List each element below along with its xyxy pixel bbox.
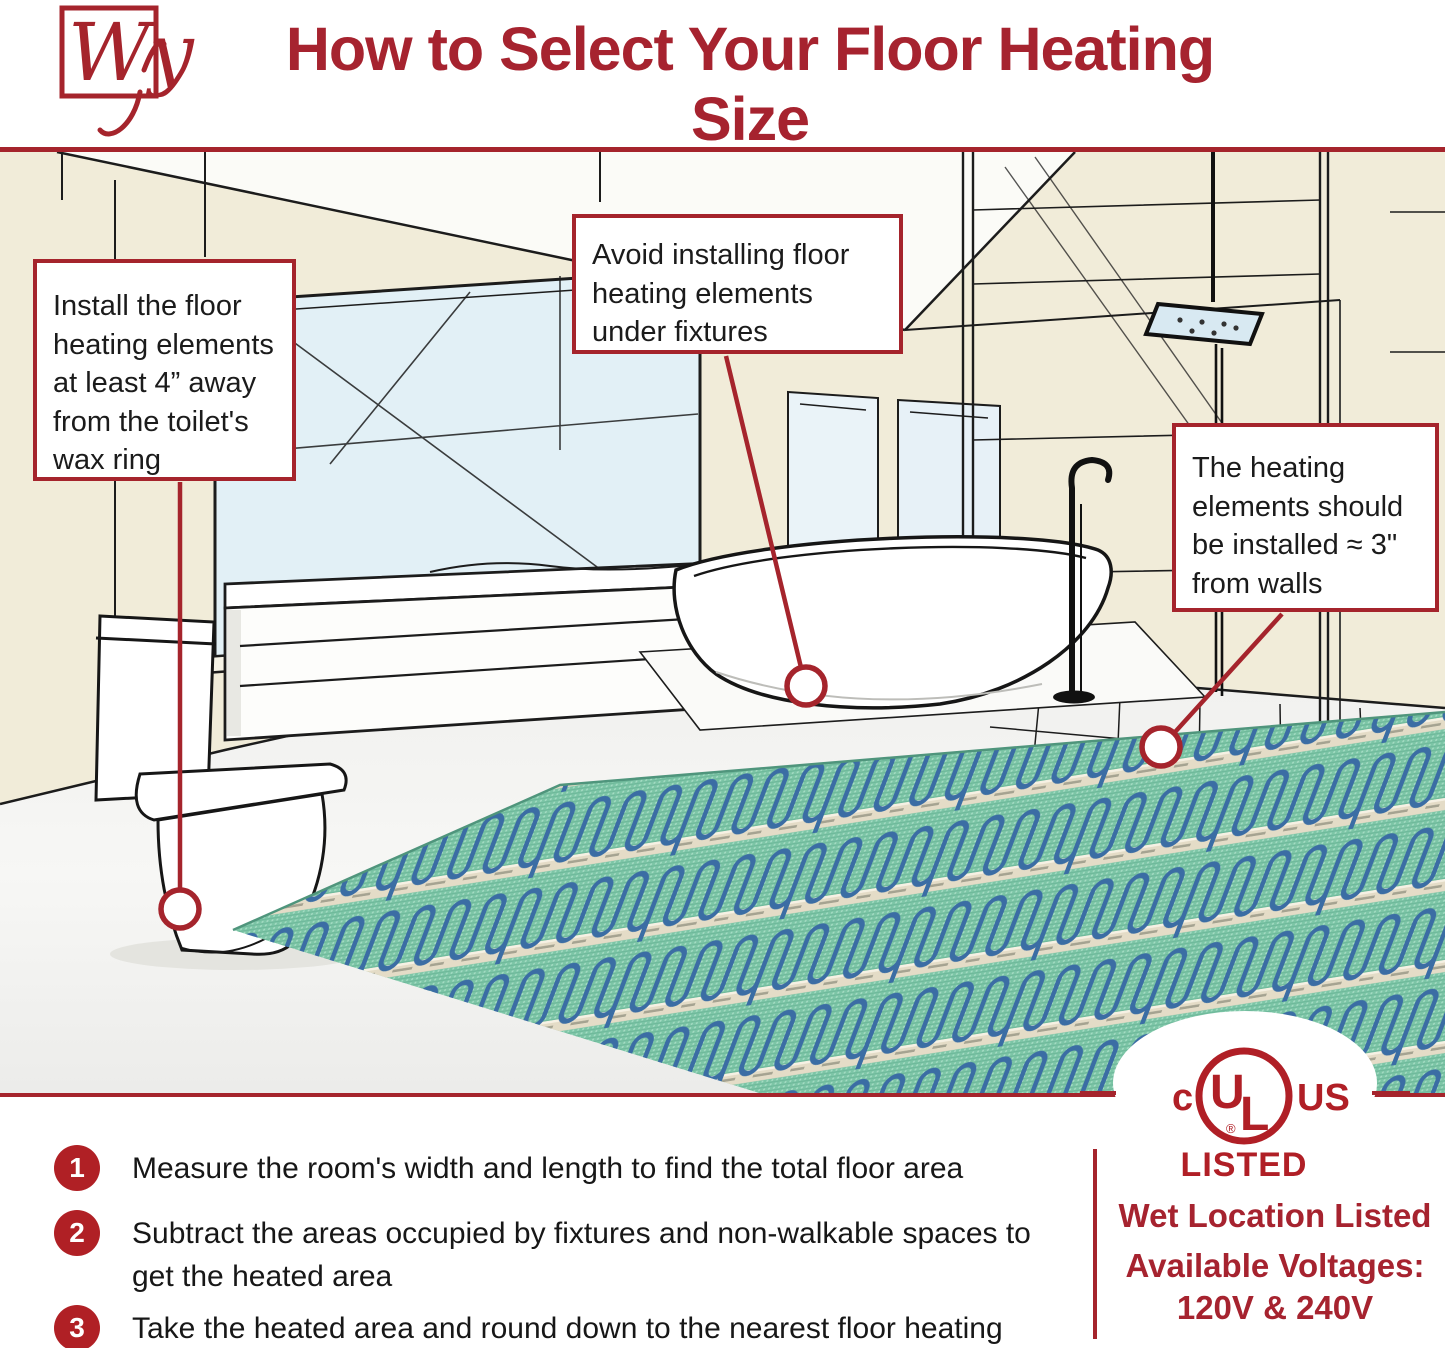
infographic-page: { "header": { "logo_text": "Wy", "title"…	[0, 0, 1445, 1348]
voltages-value: 120V & 240V	[1105, 1289, 1445, 1327]
ul-us-mark: US	[1297, 1077, 1350, 1119]
page-title: How to Select Your Floor Heating Size	[235, 14, 1265, 154]
step-1-badge: 1	[54, 1145, 100, 1191]
step-2-text: Subtract the areas occupied by fixtures …	[132, 1209, 1054, 1298]
wall-marker	[1142, 728, 1180, 766]
ul-c-mark: c	[1172, 1077, 1193, 1119]
step-1-text: Measure the room's width and length to f…	[132, 1144, 963, 1191]
listed-text: LISTED	[1181, 1146, 1308, 1184]
step-1: 1 Measure the room's width and length to…	[54, 1144, 1054, 1191]
step-2-badge: 2	[54, 1210, 100, 1256]
callout-toilet-clearance: Install the floor heating elements at le…	[33, 259, 296, 481]
ul-registered-mark: ®	[1226, 1121, 1236, 1136]
callout-wall-clearance: The heating elements should be installed…	[1172, 423, 1439, 612]
wet-location-text: Wet Location Listed	[1105, 1197, 1445, 1235]
toilet-marker	[161, 890, 199, 928]
available-voltages-label: Available Voltages:	[1105, 1247, 1445, 1285]
step-2: 2 Subtract the areas occupied by fixture…	[54, 1209, 1054, 1298]
logo-text: Wy	[68, 6, 195, 99]
step-3-text: Take the heated area and round down to t…	[132, 1304, 1054, 1348]
ul-letter-l: L	[1240, 1088, 1269, 1141]
step-3: 3 Take the heated area and round down to…	[54, 1304, 1054, 1348]
step-3-badge: 3	[54, 1305, 100, 1348]
header: Wy How to Select Your Floor Heating Size	[0, 0, 1445, 152]
tub-marker	[787, 667, 825, 705]
brand-logo: Wy	[48, 0, 218, 150]
ul-listed-badge: U L ® c US LISTED	[1080, 1008, 1410, 1193]
callout-avoid-fixtures: Avoid installing floor heating elements …	[572, 214, 903, 354]
